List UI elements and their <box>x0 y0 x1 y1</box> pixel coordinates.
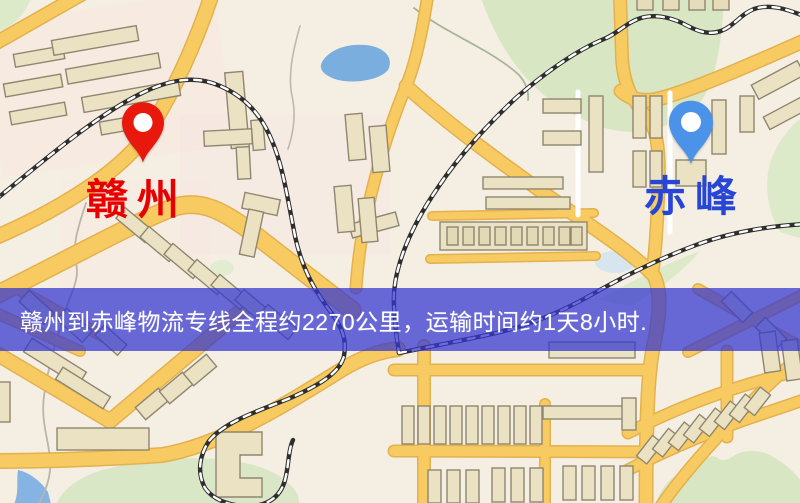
origin-city-label: 赣州 <box>86 180 188 222</box>
destination-pin-icon[interactable] <box>669 100 713 166</box>
destination-city-label: 赤峰 <box>644 177 746 219</box>
route-info-banner: 赣州到赤峰物流专线全程约2270公里，运输时间约1天8小时. <box>0 288 800 351</box>
map-canvas[interactable] <box>0 0 800 503</box>
logistics-map-image: 赣州到赤峰物流专线全程约2270公里，运输时间约1天8小时. 赣州 赤峰 <box>0 0 800 503</box>
origin-pin-icon[interactable] <box>122 101 164 165</box>
route-info-text: 赣州到赤峰物流专线全程约2270公里，运输时间约1天8小时. <box>20 303 647 337</box>
